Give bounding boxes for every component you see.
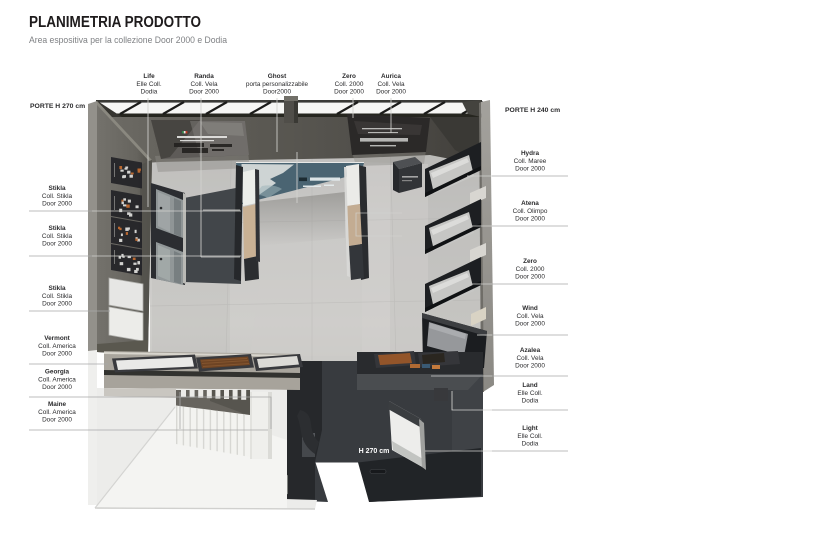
svg-text:Stikla: Stikla [48,185,65,192]
svg-text:Area espositiva per la collezi: Area espositiva per la collezione Door 2… [29,35,228,45]
svg-text:Aurica: Aurica [381,73,401,80]
svg-text:Coll. Olimpo: Coll. Olimpo [513,208,548,215]
svg-text:PORTE H 240 cm: PORTE H 240 cm [505,107,560,114]
svg-text:porta personalizzabile: porta personalizzabile [246,81,309,88]
svg-text:Life: Life [143,73,155,80]
svg-text:Vermont: Vermont [44,335,70,342]
svg-text:Elle Coll.: Elle Coll. [136,81,161,88]
svg-text:Coll. 2000: Coll. 2000 [335,81,364,88]
svg-text:Coll. Stikla: Coll. Stikla [42,233,73,240]
svg-text:Zero: Zero [523,258,537,265]
svg-text:Door 2000: Door 2000 [515,321,545,328]
svg-text:Door 2000: Door 2000 [515,274,545,281]
svg-text:Door 2000: Door 2000 [42,201,72,208]
svg-text:Door2000: Door2000 [263,89,292,96]
svg-text:Door 2000: Door 2000 [515,166,545,173]
svg-text:Hydra: Hydra [521,150,540,157]
svg-text:Door 2000: Door 2000 [42,351,72,358]
svg-text:Randa: Randa [194,73,214,80]
svg-text:Coll. Stikla: Coll. Stikla [42,193,73,200]
svg-text:PLANIMETRIA PRODOTTO: PLANIMETRIA PRODOTTO [29,14,201,31]
svg-text:Door 2000: Door 2000 [334,89,364,96]
svg-text:Zero: Zero [342,73,356,80]
svg-text:Coll. Vela: Coll. Vela [517,355,544,362]
svg-text:Land: Land [522,382,537,389]
svg-text:Coll. Vela: Coll. Vela [191,81,218,88]
svg-text:Door 2000: Door 2000 [376,89,406,96]
svg-text:Coll. America: Coll. America [38,376,76,383]
svg-text:Elle Coll.: Elle Coll. [517,433,542,440]
svg-text:Door 2000: Door 2000 [42,241,72,248]
svg-text:Coll. America: Coll. America [38,409,76,416]
svg-text:Light: Light [522,425,538,432]
svg-text:Stikla: Stikla [48,285,65,292]
svg-text:Coll. Vela: Coll. Vela [517,313,544,320]
svg-text:Door 2000: Door 2000 [189,89,219,96]
svg-text:Door 2000: Door 2000 [42,417,72,424]
svg-text:Ghost: Ghost [268,73,287,80]
svg-text:Dodia: Dodia [522,441,539,448]
svg-text:Elle Coll.: Elle Coll. [517,390,542,397]
svg-text:Door 2000: Door 2000 [515,216,545,223]
svg-text:H 270 cm: H 270 cm [359,448,390,455]
svg-text:Door 2000: Door 2000 [42,301,72,308]
svg-text:Dodia: Dodia [522,398,539,405]
svg-text:Georgia: Georgia [45,369,70,376]
svg-text:Dodia: Dodia [141,89,158,96]
svg-text:Stikla: Stikla [48,225,65,232]
svg-text:Maine: Maine [48,401,67,408]
svg-text:Azalea: Azalea [520,347,541,354]
svg-text:Door 2000: Door 2000 [42,384,72,391]
svg-text:Coll. Maree: Coll. Maree [514,158,547,165]
svg-text:Coll. 2000: Coll. 2000 [516,266,545,273]
svg-text:Coll. Vela: Coll. Vela [378,81,405,88]
svg-text:PORTE H 270 cm: PORTE H 270 cm [30,103,85,110]
svg-text:Door 2000: Door 2000 [515,363,545,370]
svg-text:Coll. Stikla: Coll. Stikla [42,293,73,300]
svg-text:Atena: Atena [521,200,539,207]
svg-text:Coll. America: Coll. America [38,343,76,350]
svg-text:Wind: Wind [522,305,538,312]
